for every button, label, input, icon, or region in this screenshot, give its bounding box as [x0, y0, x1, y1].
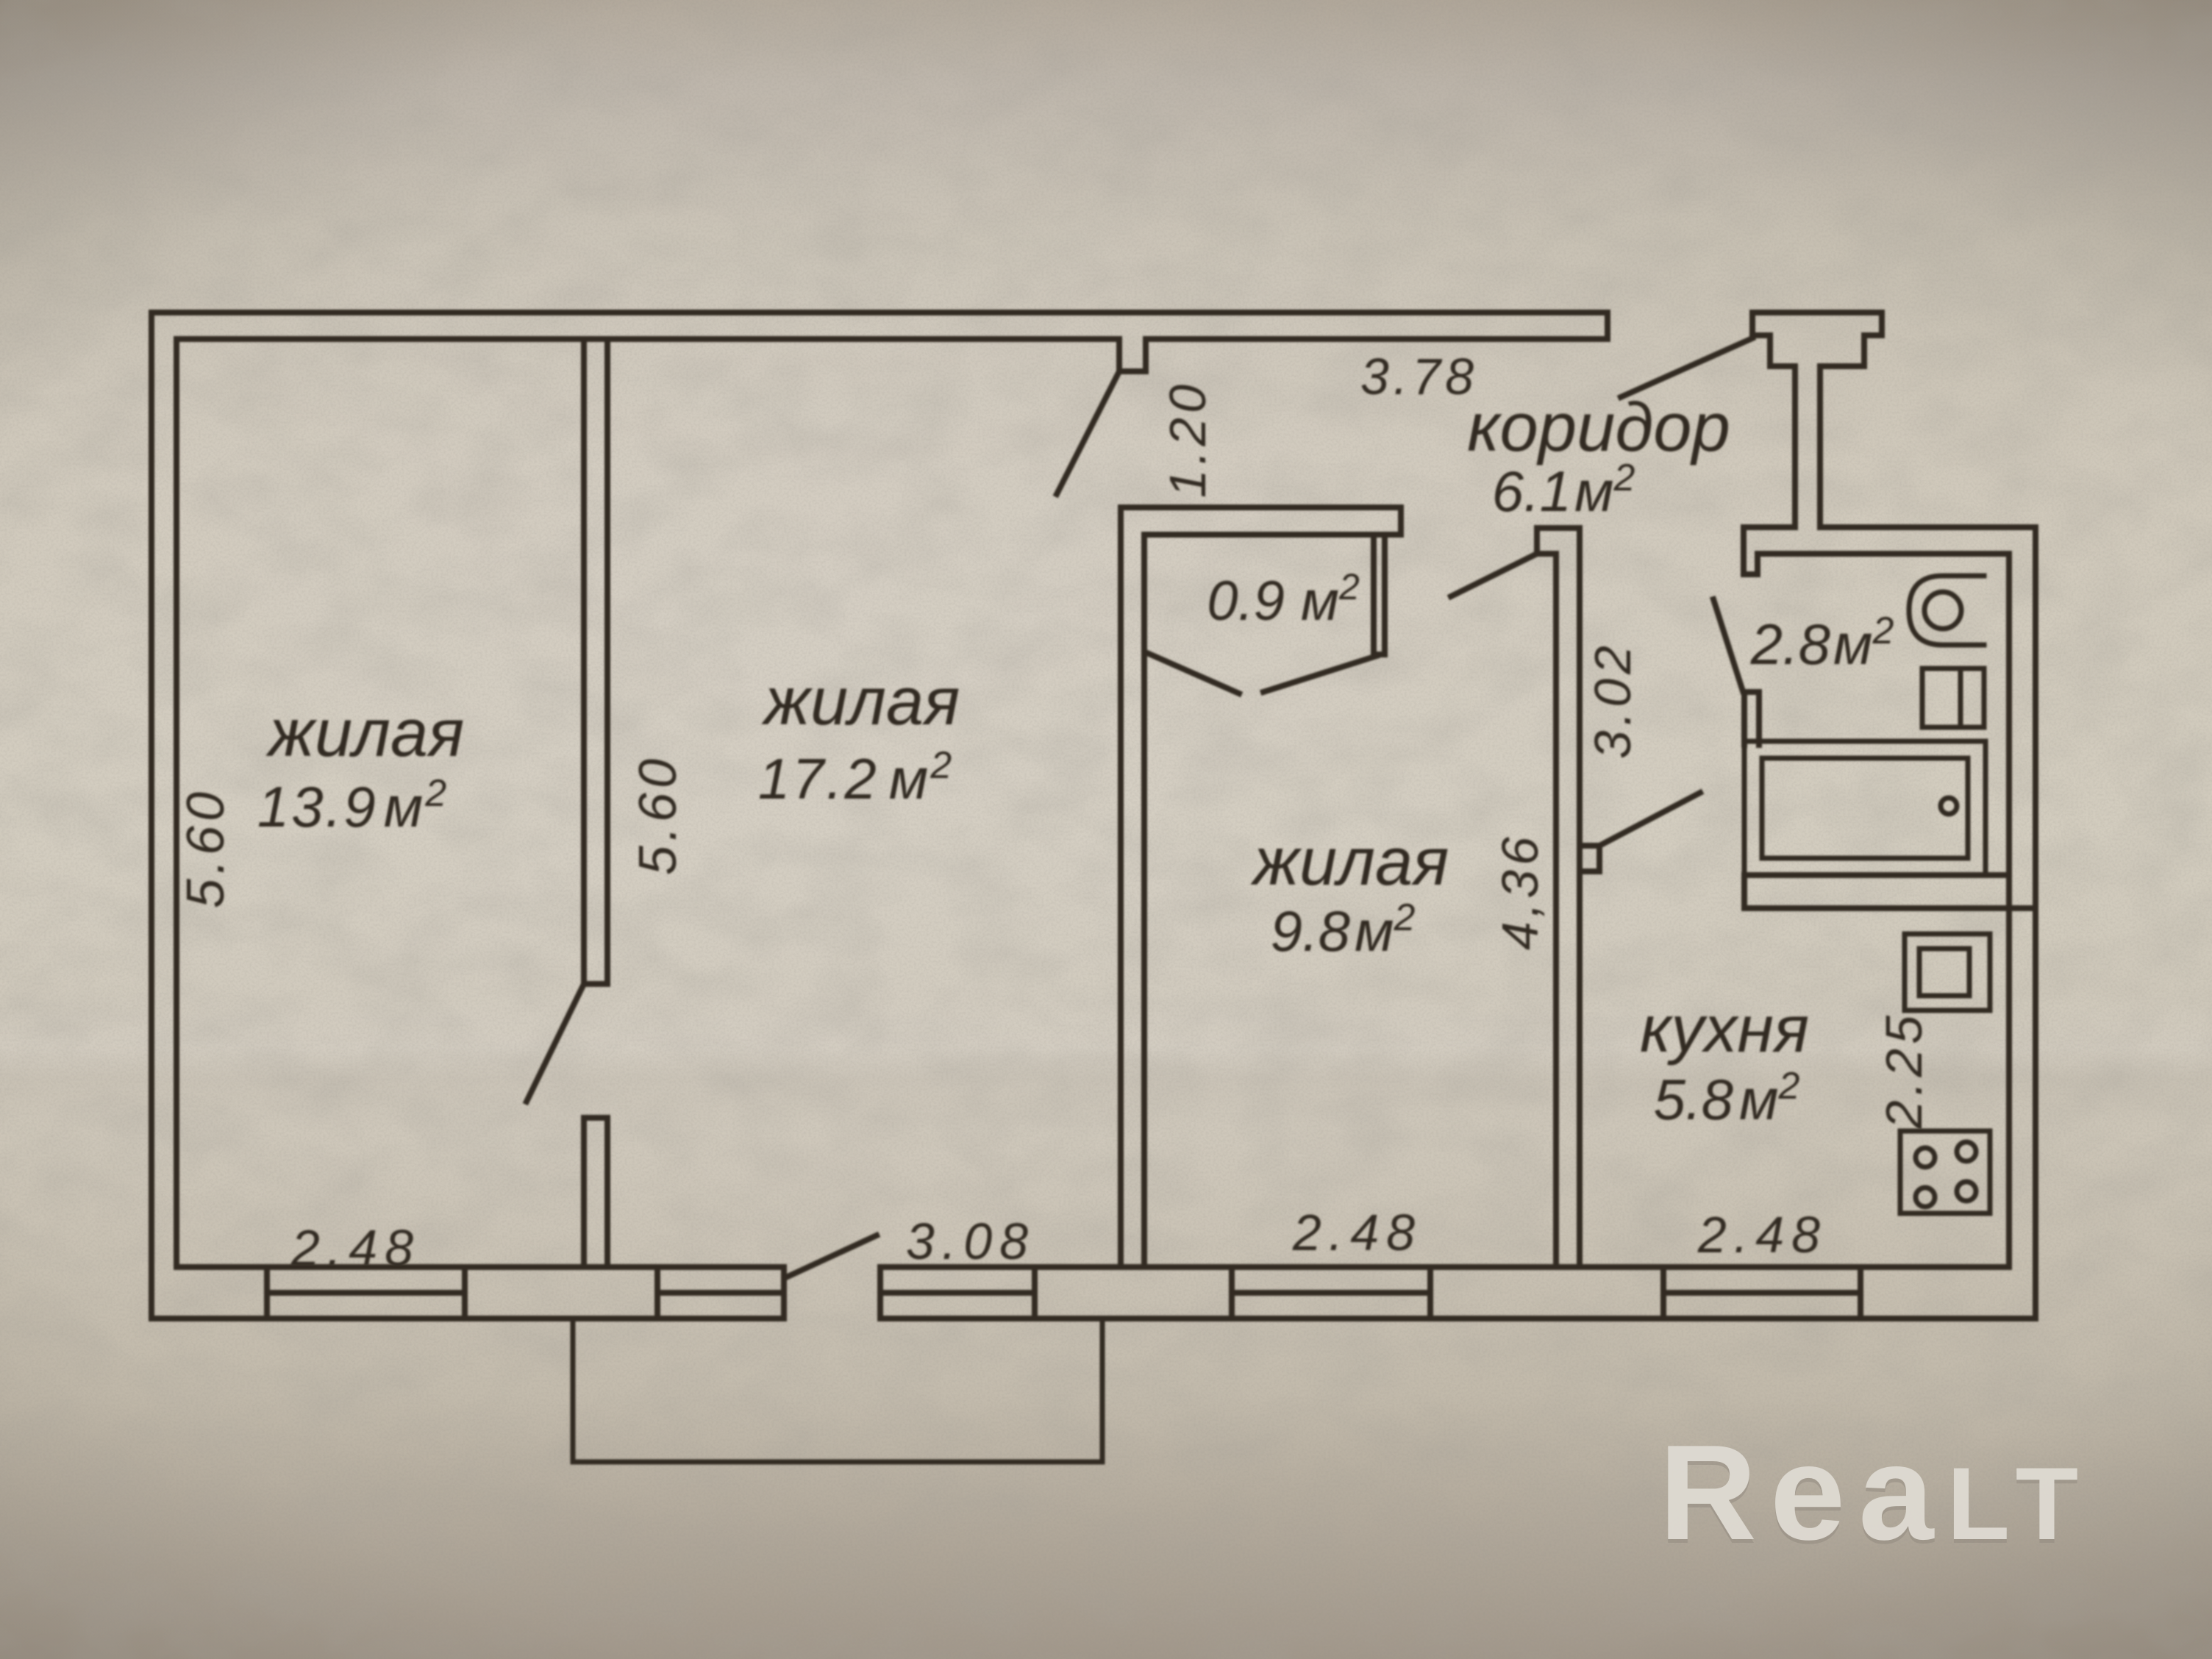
svg-text:3.78: 3.78	[1360, 348, 1478, 405]
svg-text:жилая: жилая	[1250, 824, 1449, 899]
svg-text:5.60: 5.60	[629, 754, 688, 875]
svg-text:3.02: 3.02	[1584, 641, 1641, 759]
svg-text:жилая: жилая	[761, 664, 960, 739]
svg-text:2.48: 2.48	[1292, 1204, 1422, 1261]
svg-text:2.48: 2.48	[290, 1219, 421, 1277]
svg-text:17.2м2: 17.2м2	[758, 744, 954, 811]
svg-text:0.9м2: 0.9м2	[1207, 566, 1360, 632]
svg-text:4,36: 4,36	[1491, 832, 1549, 950]
svg-text:кухня: кухня	[1640, 993, 1809, 1066]
svg-text:2.25: 2.25	[1875, 1011, 1933, 1130]
svg-text:9.8м2: 9.8м2	[1271, 896, 1416, 963]
svg-text:1.20: 1.20	[1159, 380, 1216, 498]
svg-text:жилая: жилая	[265, 696, 465, 771]
svg-text:2.48: 2.48	[1697, 1206, 1827, 1263]
svg-text:6.1м2: 6.1м2	[1492, 457, 1635, 524]
svg-text:коридор: коридор	[1467, 388, 1730, 465]
svg-text:2.8м2: 2.8м2	[1750, 610, 1894, 677]
svg-text:3.08: 3.08	[906, 1213, 1035, 1270]
svg-text:13.9м2: 13.9м2	[257, 772, 449, 839]
svg-text:5.60: 5.60	[176, 788, 235, 908]
svg-text:5.8м2: 5.8м2	[1654, 1065, 1800, 1132]
